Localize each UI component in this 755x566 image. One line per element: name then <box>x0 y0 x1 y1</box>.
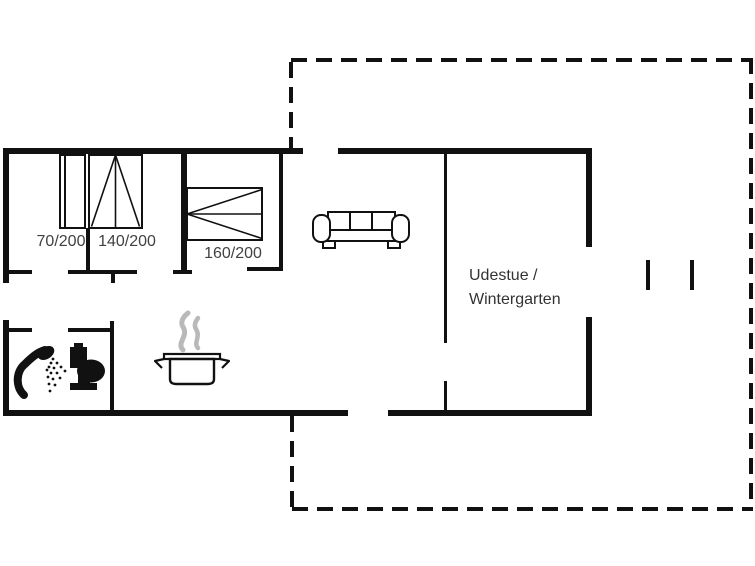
sofa-icon <box>313 212 409 248</box>
furniture-layer <box>0 0 755 566</box>
bed-double-label: 140/200 <box>94 233 160 250</box>
shower-icon <box>18 343 67 395</box>
conservatory-label-line1: Udestue / <box>469 267 537 284</box>
conservatory-label: Udestue / Wintergarten <box>469 264 561 312</box>
bed-master-label: 160/200 <box>200 245 266 262</box>
cooking-pot-icon <box>155 354 229 384</box>
bed-small-label: 70/200 <box>33 233 89 250</box>
conservatory-label-line2: Wintergarten <box>469 291 561 308</box>
bed-160-icon <box>187 188 262 240</box>
steam-icon <box>181 313 198 350</box>
bed-70-icon <box>60 155 85 228</box>
floor-plan: 70/200 140/200 160/200 Udestue / Winterg… <box>0 0 755 566</box>
shower-spray-dots <box>46 358 67 393</box>
toilet-icon <box>70 343 105 390</box>
bed-140-icon <box>89 155 142 228</box>
